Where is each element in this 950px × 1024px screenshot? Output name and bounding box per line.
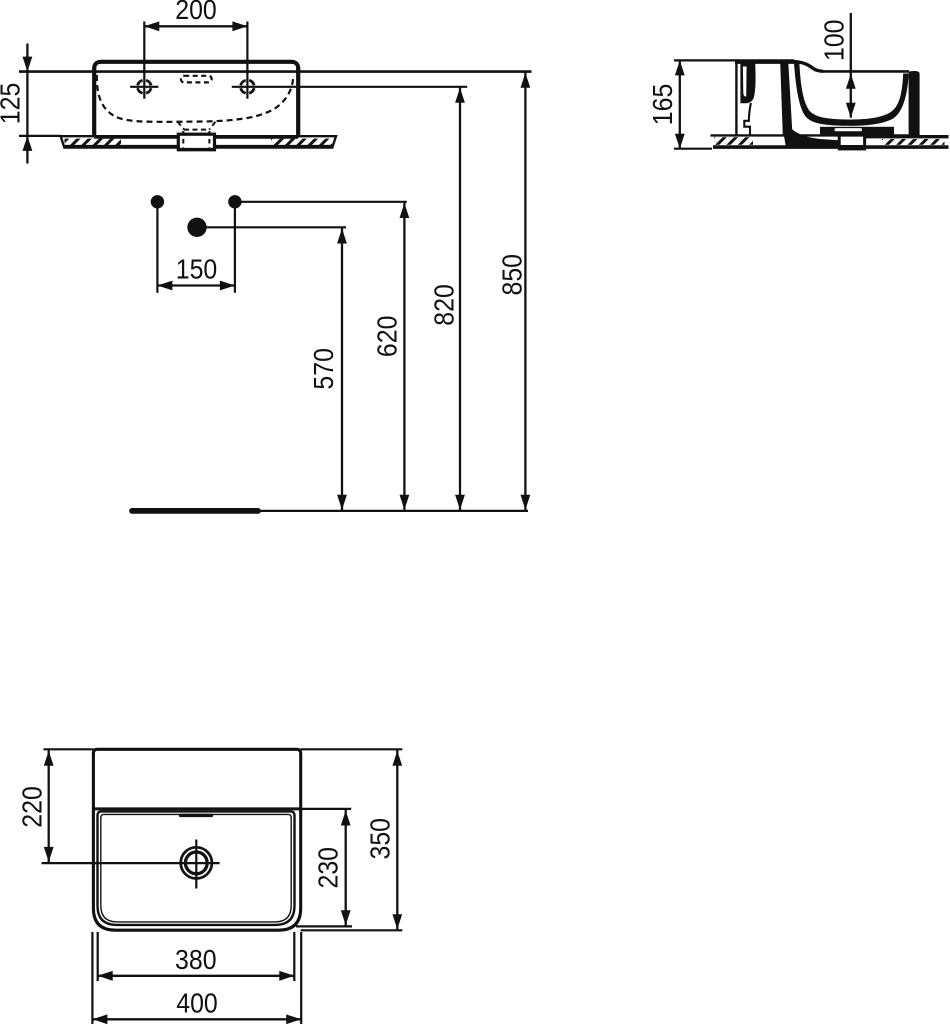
svg-text:400: 400 (176, 988, 218, 1019)
svg-text:125: 125 (0, 83, 25, 125)
svg-text:100: 100 (818, 20, 849, 62)
svg-text:620: 620 (372, 316, 403, 358)
svg-text:230: 230 (313, 847, 344, 889)
svg-text:220: 220 (17, 786, 48, 828)
svg-text:165: 165 (647, 84, 678, 126)
svg-text:200: 200 (175, 0, 217, 25)
svg-text:380: 380 (175, 944, 217, 975)
svg-text:350: 350 (365, 818, 396, 860)
svg-text:820: 820 (429, 284, 460, 326)
svg-text:850: 850 (496, 254, 527, 296)
svg-text:150: 150 (176, 253, 218, 284)
svg-text:570: 570 (308, 348, 339, 390)
